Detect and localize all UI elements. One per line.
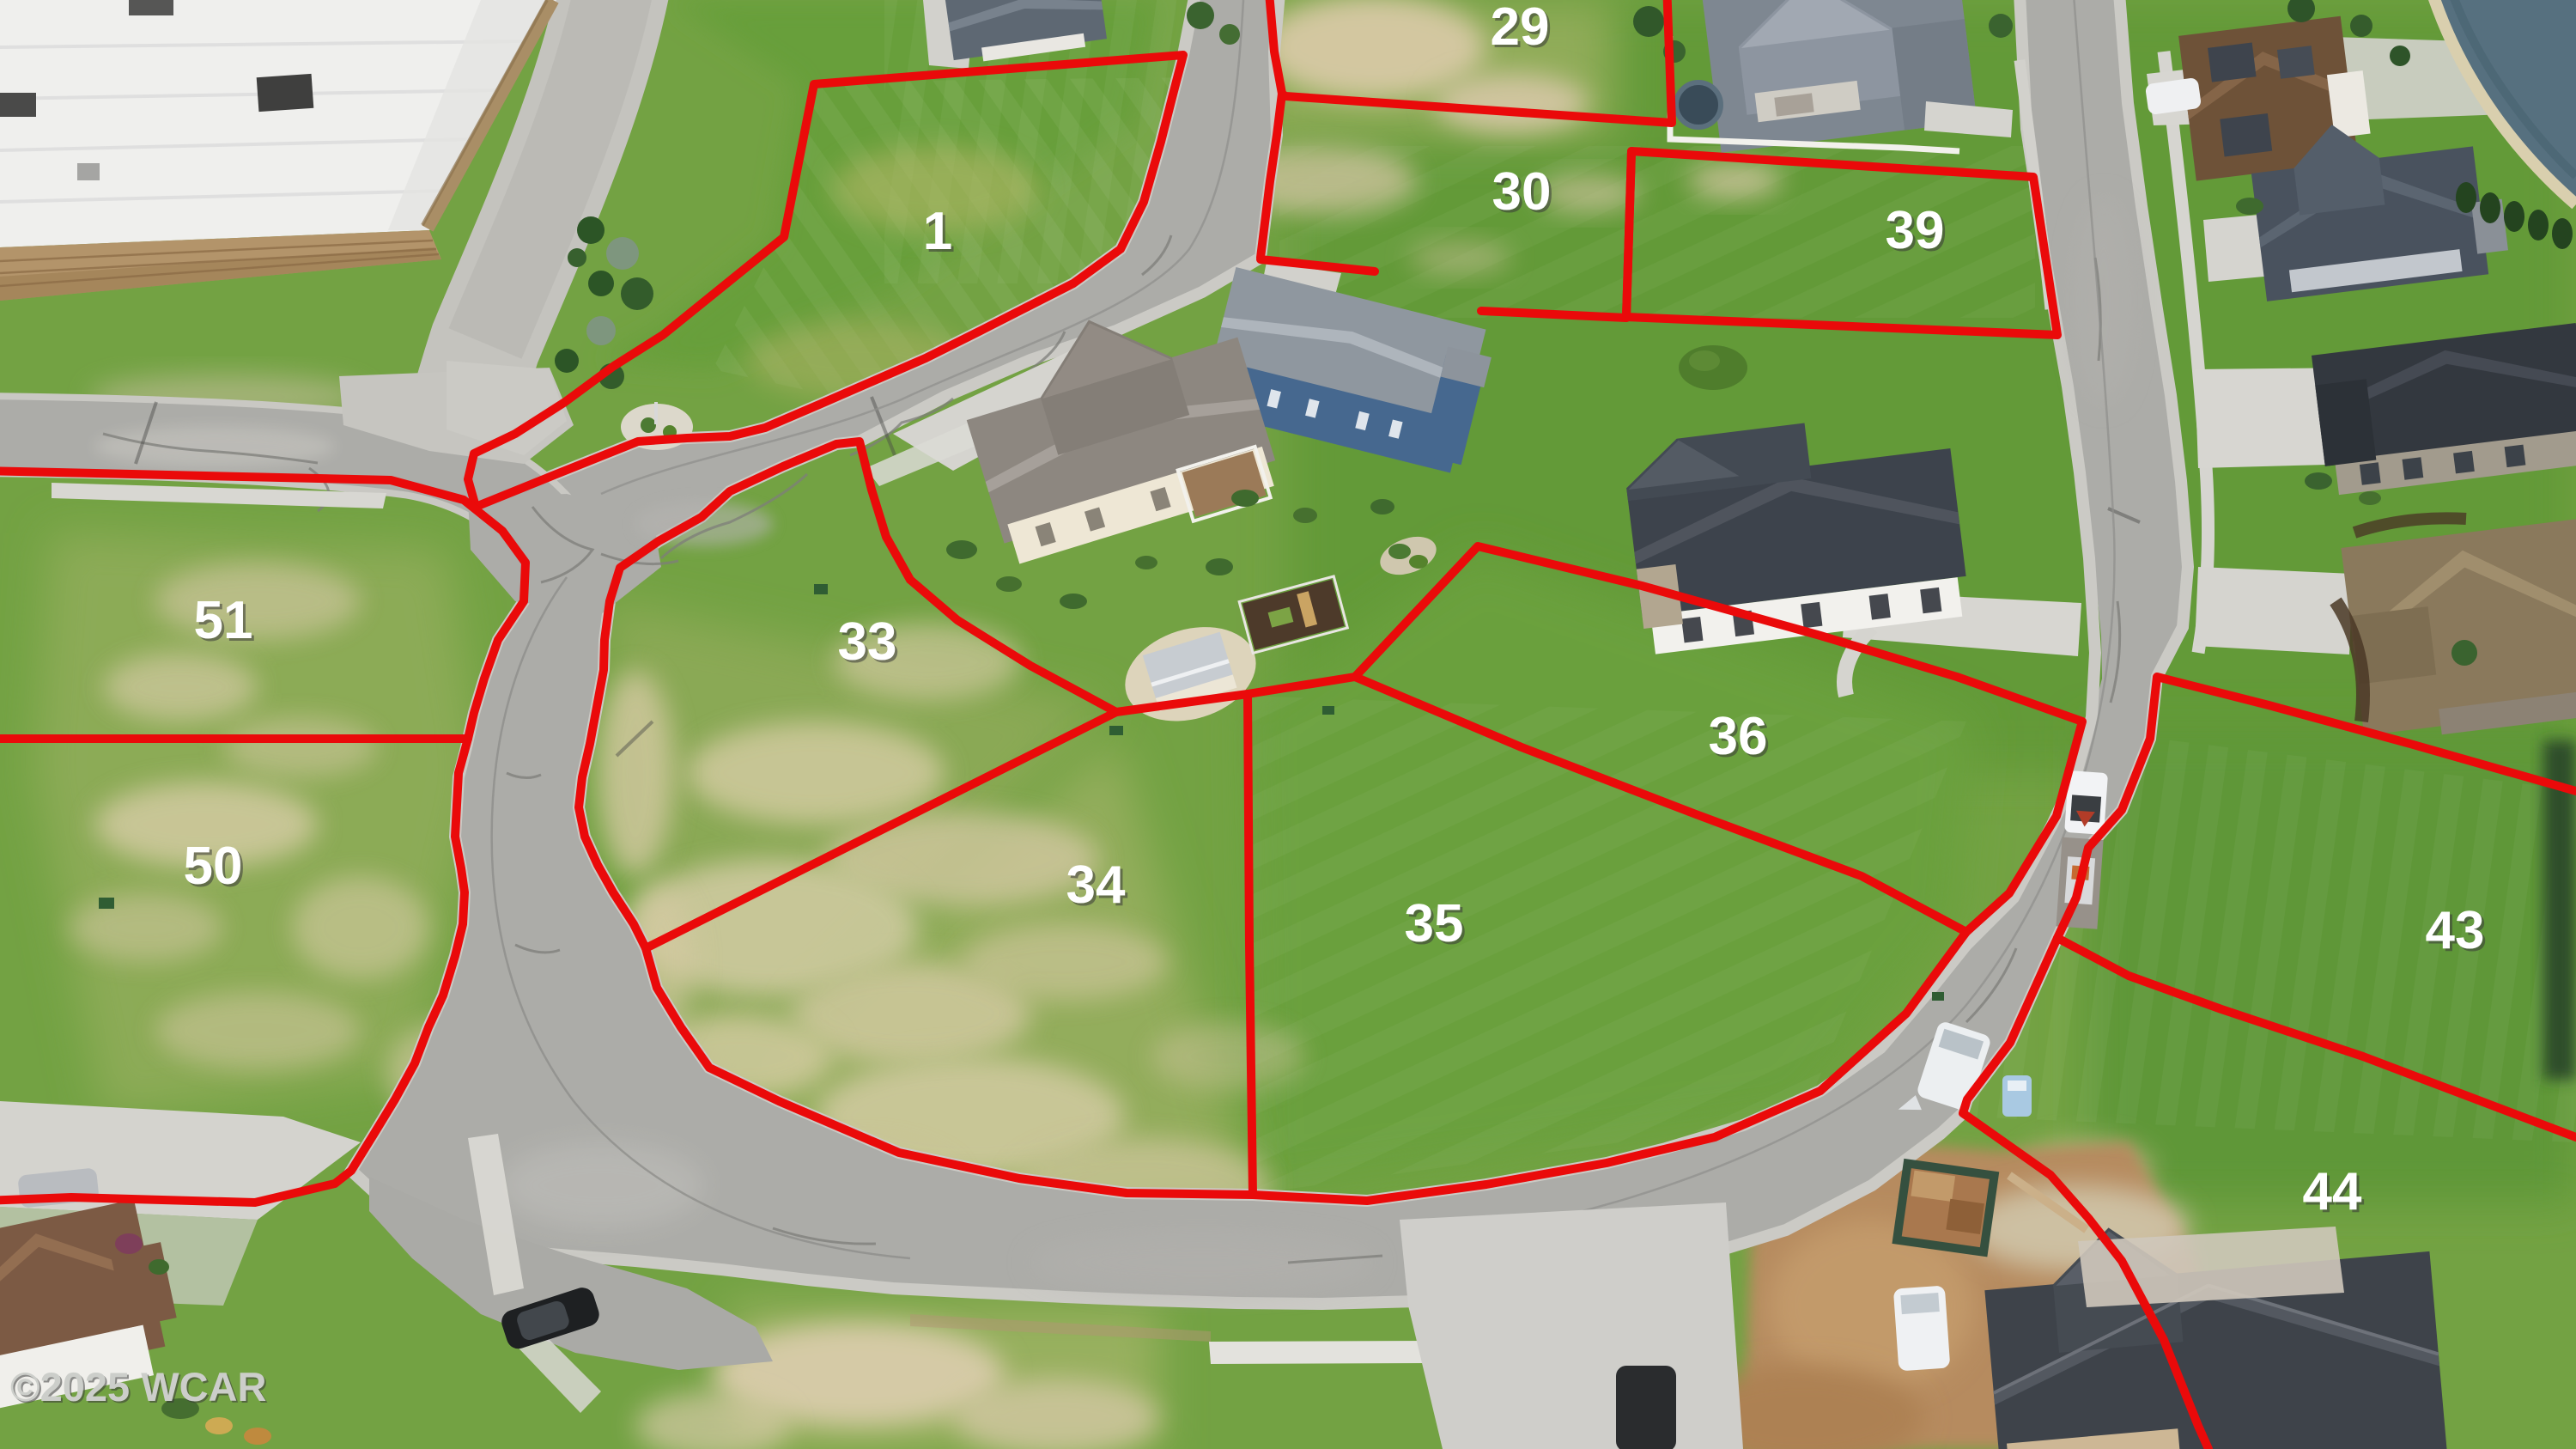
svg-text:44: 44 bbox=[2303, 1162, 2362, 1221]
svg-text:39: 39 bbox=[1886, 201, 1945, 260]
svg-text:50: 50 bbox=[184, 837, 243, 896]
svg-text:51: 51 bbox=[194, 591, 253, 650]
svg-text:©2025 WCAR: ©2025 WCAR bbox=[10, 1364, 266, 1409]
svg-text:43: 43 bbox=[2426, 901, 2485, 960]
svg-text:30: 30 bbox=[1492, 162, 1552, 222]
svg-text:36: 36 bbox=[1709, 707, 1768, 766]
svg-text:29: 29 bbox=[1491, 0, 1550, 57]
svg-text:1: 1 bbox=[923, 202, 952, 261]
svg-text:35: 35 bbox=[1405, 894, 1464, 953]
svg-text:33: 33 bbox=[838, 612, 897, 672]
svg-text:34: 34 bbox=[1066, 855, 1126, 915]
